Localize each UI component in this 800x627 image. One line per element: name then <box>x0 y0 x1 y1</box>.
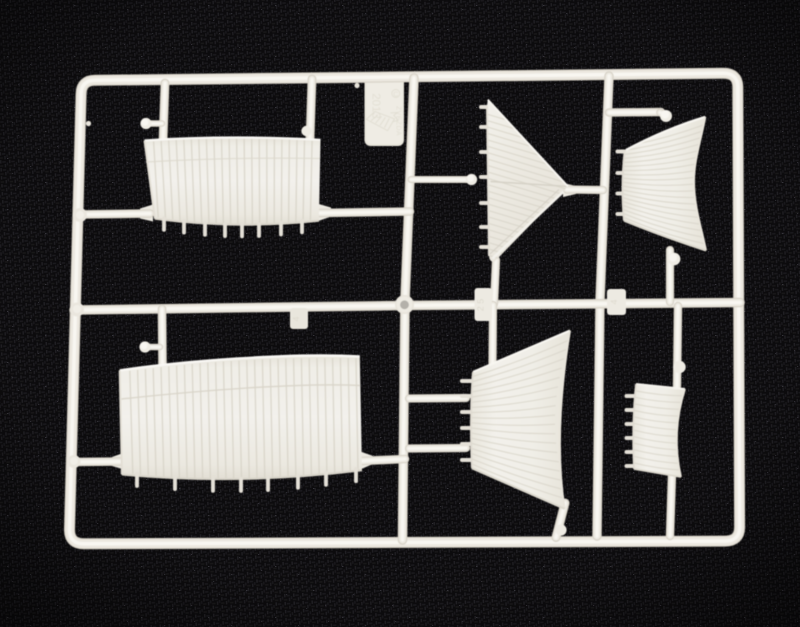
svg-text:ZVEZDA: ZVEZDA <box>395 106 402 136</box>
svg-text:2 5: 2 5 <box>476 299 486 312</box>
svg-text:4: 4 <box>291 316 301 321</box>
svg-text:4: 4 <box>609 299 619 304</box>
svg-text:C: C <box>393 91 398 98</box>
